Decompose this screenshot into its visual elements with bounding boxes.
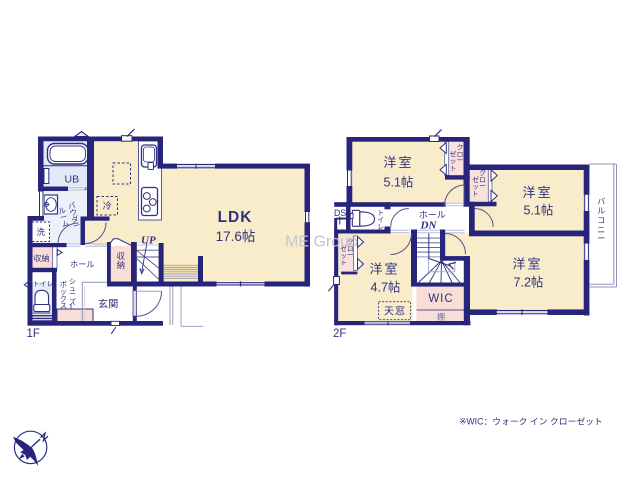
svg-text:17.6帖: 17.6帖 xyxy=(216,229,256,244)
svg-text:5.1帖: 5.1帖 xyxy=(524,203,554,218)
svg-text:ホール: ホール xyxy=(70,260,95,269)
svg-text:洋室: 洋室 xyxy=(383,155,413,170)
svg-text:DN: DN xyxy=(420,220,438,232)
svg-text:WIC: WIC xyxy=(428,293,453,305)
svg-text:ME Group: ME Group xyxy=(285,234,358,251)
svg-text:棚: 棚 xyxy=(437,312,445,322)
svg-text:ホール: ホール xyxy=(419,210,446,220)
svg-text:トイレ: トイレ xyxy=(377,210,384,231)
svg-text:洗: 洗 xyxy=(36,227,45,237)
svg-text:収納: 収納 xyxy=(117,251,126,270)
svg-text:ゼット: ゼット xyxy=(472,175,479,198)
svg-text:収納: 収納 xyxy=(34,253,50,263)
svg-text:4.7帖: 4.7帖 xyxy=(371,280,401,295)
svg-text:7.2帖: 7.2帖 xyxy=(514,275,544,290)
svg-text:LDK: LDK xyxy=(218,209,253,226)
svg-text:バルコニー: バルコニー xyxy=(597,197,605,243)
svg-text:UB: UB xyxy=(65,174,80,186)
svg-text:クロー: クロー xyxy=(479,169,486,190)
svg-text:ゼット: ゼット xyxy=(450,150,457,173)
svg-text:玄関: 玄関 xyxy=(98,298,118,311)
svg-text:洋室: 洋室 xyxy=(512,257,542,272)
svg-text:※WIC：ウォーク イン クローゼット: ※WIC：ウォーク イン クローゼット xyxy=(459,416,603,427)
svg-text:トイレ: トイレ xyxy=(33,281,54,288)
svg-text:洋室: 洋室 xyxy=(522,185,552,200)
svg-text:5.1帖: 5.1帖 xyxy=(384,175,414,190)
svg-text:洋室: 洋室 xyxy=(369,262,399,277)
svg-text:天窓: 天窓 xyxy=(384,305,406,318)
svg-text:ボックス: ボックス xyxy=(60,280,67,310)
svg-text:クロー: クロー xyxy=(457,144,464,165)
svg-text:UP: UP xyxy=(141,235,156,247)
svg-text:1F: 1F xyxy=(27,328,40,340)
svg-text:冷: 冷 xyxy=(103,200,112,211)
svg-text:シューズ: シューズ xyxy=(69,277,76,307)
svg-text:2F: 2F xyxy=(333,328,346,340)
